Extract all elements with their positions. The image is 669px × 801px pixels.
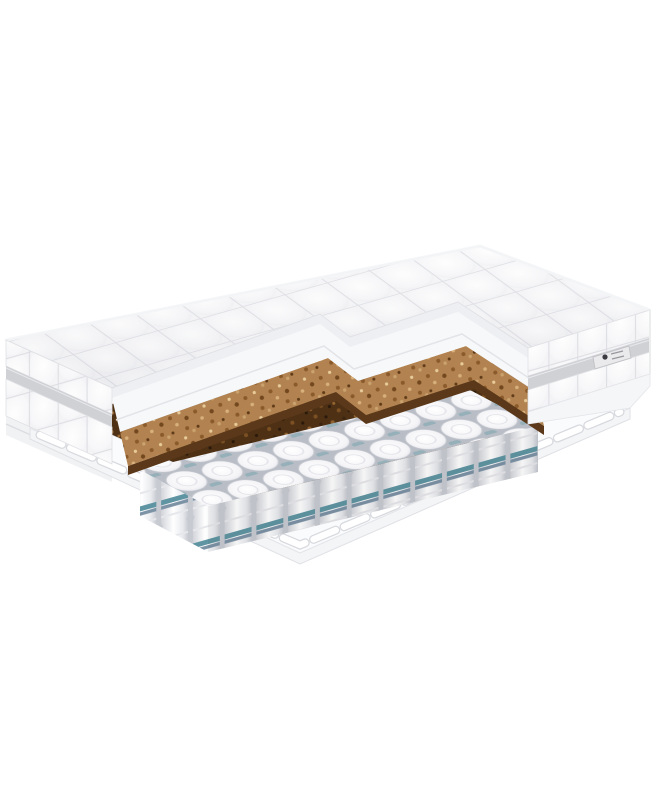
product-photo	[0, 0, 669, 801]
brand-logo-icon	[602, 354, 607, 359]
mattress-cross-section-image	[0, 0, 669, 801]
